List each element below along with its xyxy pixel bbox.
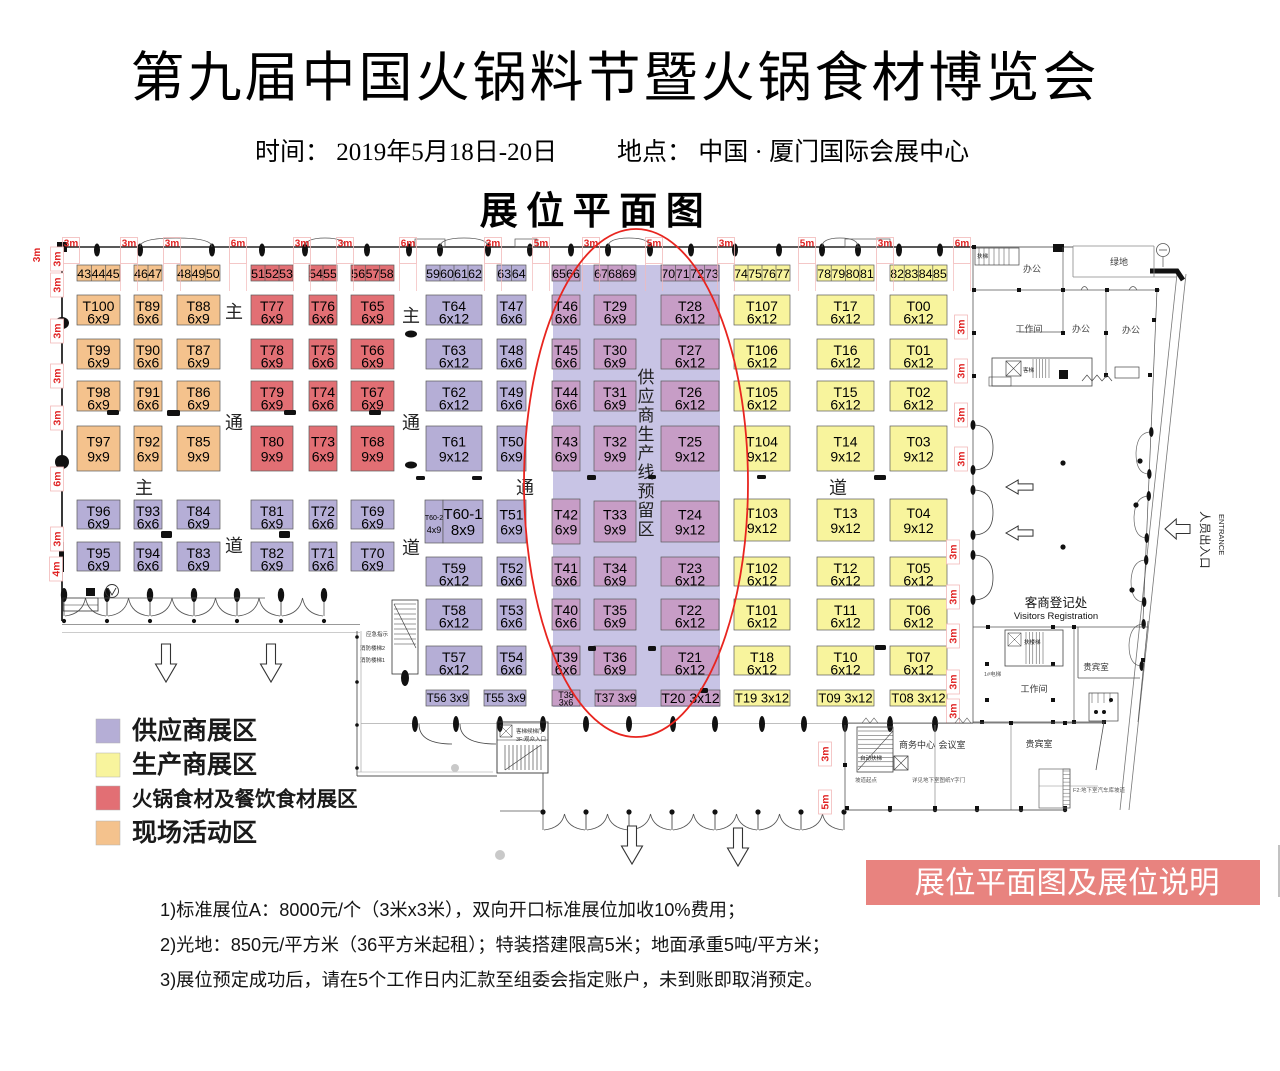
svg-text:58: 58 — [380, 267, 394, 281]
svg-text:81: 81 — [860, 267, 874, 281]
svg-text:3m: 3m — [948, 589, 960, 604]
svg-text:5m: 5m — [647, 238, 662, 249]
svg-text:6x9: 6x9 — [187, 557, 210, 573]
svg-text:6x12: 6x12 — [903, 310, 934, 326]
svg-text:会议室: 会议室 — [938, 739, 965, 750]
svg-text:坡道起点: 坡道起点 — [855, 776, 878, 784]
svg-text:9x12: 9x12 — [830, 449, 861, 465]
svg-text:6x6: 6x6 — [500, 661, 523, 677]
svg-text:6x6: 6x6 — [555, 396, 578, 412]
svg-text:应: 应 — [638, 387, 655, 406]
svg-text:T08 3x12: T08 3x12 — [891, 691, 945, 706]
svg-text:80: 80 — [846, 267, 860, 281]
svg-text:T85: T85 — [186, 433, 210, 449]
svg-text:6x6: 6x6 — [555, 572, 578, 588]
svg-text:T60-2: T60-2 — [425, 515, 443, 522]
svg-text:6x12: 6x12 — [747, 310, 778, 326]
svg-text:6x6: 6x6 — [312, 310, 335, 326]
svg-text:T09 3x12: T09 3x12 — [818, 691, 872, 706]
svg-text:道: 道 — [829, 478, 847, 498]
svg-text:道: 道 — [402, 538, 420, 558]
svg-text:火锅食材及餐饮食材展区: 火锅食材及餐饮食材展区 — [132, 787, 358, 811]
svg-text:商务中心: 商务中心 — [899, 739, 935, 750]
svg-text:F2:地下室汽车库坡道: F2:地下室汽车库坡道 — [1073, 786, 1125, 794]
svg-text:3m: 3m — [52, 323, 64, 338]
svg-text:T97: T97 — [86, 433, 110, 449]
svg-text:9x12: 9x12 — [747, 520, 778, 536]
svg-text:6x9: 6x9 — [361, 396, 384, 412]
svg-text:商: 商 — [638, 406, 655, 425]
svg-text:工作间: 工作间 — [1015, 323, 1042, 334]
svg-text:6x9: 6x9 — [87, 557, 110, 573]
svg-text:47: 47 — [148, 267, 162, 281]
svg-text:线: 线 — [638, 463, 655, 482]
svg-text:6x12: 6x12 — [675, 661, 706, 677]
svg-text:客梯: 客梯 — [1023, 366, 1035, 374]
svg-text:3m: 3m — [165, 238, 180, 249]
svg-text:6x6: 6x6 — [137, 515, 160, 531]
svg-text:6x12: 6x12 — [903, 614, 934, 630]
svg-text:3m: 3m — [122, 238, 137, 249]
svg-text:6x9: 6x9 — [555, 522, 578, 538]
svg-text:60: 60 — [440, 267, 454, 281]
svg-text:T19 3x12: T19 3x12 — [735, 691, 789, 706]
svg-text:6x9: 6x9 — [187, 354, 210, 370]
svg-text:3m: 3m — [878, 238, 893, 249]
svg-text:83: 83 — [905, 267, 919, 281]
svg-text:8x9: 8x9 — [451, 522, 475, 539]
svg-text:6x9: 6x9 — [261, 557, 284, 573]
svg-text:6x6: 6x6 — [137, 354, 160, 370]
svg-text:自动扶梯: 自动扶梯 — [860, 754, 883, 762]
svg-text:45: 45 — [106, 267, 120, 281]
svg-text:6x6: 6x6 — [500, 396, 523, 412]
svg-text:6x12: 6x12 — [675, 572, 706, 588]
svg-text:T92: T92 — [136, 433, 160, 449]
svg-text:71: 71 — [676, 267, 690, 281]
svg-text:T55 3x9: T55 3x9 — [484, 693, 526, 705]
svg-text:6x6: 6x6 — [555, 310, 578, 326]
svg-text:T56 3x9: T56 3x9 — [427, 693, 469, 705]
svg-text:3m: 3m — [584, 238, 599, 249]
svg-text:6x9: 6x9 — [604, 354, 627, 370]
svg-text:75: 75 — [748, 267, 762, 281]
svg-text:48: 48 — [177, 267, 191, 281]
svg-text:时间： 2019年5月18日-20日: 时间： 2019年5月18日-20日 — [255, 138, 557, 166]
svg-text:T13: T13 — [833, 505, 857, 521]
svg-text:客梯候梯厅: 客梯候梯厅 — [516, 727, 544, 735]
svg-text:留: 留 — [638, 501, 655, 520]
svg-text:6x12: 6x12 — [439, 614, 470, 630]
svg-text:79: 79 — [832, 267, 846, 281]
svg-text:T25: T25 — [678, 433, 702, 449]
svg-text:3m: 3m — [52, 251, 64, 266]
svg-text:6x6: 6x6 — [312, 515, 335, 531]
svg-text:T50: T50 — [499, 433, 523, 449]
svg-text:6x12: 6x12 — [675, 614, 706, 630]
svg-text:5m: 5m — [534, 238, 549, 249]
svg-text:3)展位预定成功后，请在5个工作日内汇款至组委会指定账户，未: 3)展位预定成功后，请在5个工作日内汇款至组委会指定账户，未到账即取消预定。 — [160, 970, 823, 990]
svg-text:T43: T43 — [554, 433, 578, 449]
svg-text:3m: 3m — [52, 531, 64, 546]
svg-text:9x9: 9x9 — [187, 449, 210, 465]
svg-text:53: 53 — [279, 267, 293, 281]
svg-text:6x9: 6x9 — [312, 449, 335, 465]
svg-text:T04: T04 — [906, 505, 930, 521]
svg-text:74: 74 — [734, 267, 748, 281]
svg-text:6x9: 6x9 — [604, 310, 627, 326]
svg-text:6x12: 6x12 — [675, 354, 706, 370]
svg-text:区: 区 — [638, 520, 655, 539]
svg-text:6x6: 6x6 — [500, 614, 523, 630]
svg-text:T37 3x9: T37 3x9 — [595, 693, 637, 705]
svg-text:6x12: 6x12 — [903, 396, 934, 412]
svg-text:6x9: 6x9 — [187, 515, 210, 531]
svg-text:产: 产 — [638, 444, 655, 463]
svg-text:3F:观众入口: 3F:观众入口 — [516, 736, 546, 743]
svg-text:6x9: 6x9 — [604, 572, 627, 588]
svg-text:6x12: 6x12 — [747, 661, 778, 677]
svg-text:6x9: 6x9 — [261, 515, 284, 531]
svg-text:办公: 办公 — [1023, 263, 1041, 274]
svg-text:扶梯: 扶梯 — [977, 252, 989, 260]
svg-text:人员出入口: 人员出入口 — [1198, 511, 1212, 569]
svg-text:6x6: 6x6 — [312, 557, 335, 573]
svg-text:T42: T42 — [554, 506, 578, 522]
svg-text:68: 68 — [608, 267, 622, 281]
svg-text:6x6: 6x6 — [500, 354, 523, 370]
svg-text:6x12: 6x12 — [439, 661, 470, 677]
svg-text:预: 预 — [638, 482, 655, 501]
svg-text:3x6: 3x6 — [559, 698, 574, 708]
svg-text:3m: 3m — [820, 746, 832, 761]
svg-text:64: 64 — [512, 267, 526, 281]
svg-text:第九届中国火锅料节暨火锅食材博览会: 第九届中国火锅料节暨火锅食材博览会 — [131, 48, 1100, 108]
svg-text:9x9: 9x9 — [604, 522, 627, 538]
svg-text:6x9: 6x9 — [361, 354, 384, 370]
svg-text:T14: T14 — [833, 433, 857, 449]
svg-text:T68: T68 — [360, 433, 384, 449]
svg-text:9x9: 9x9 — [604, 449, 627, 465]
svg-text:6x12: 6x12 — [439, 572, 470, 588]
svg-text:通: 通 — [402, 413, 420, 433]
svg-text:6m: 6m — [401, 238, 416, 249]
svg-text:1#电梯: 1#电梯 — [984, 670, 1002, 678]
svg-text:生: 生 — [638, 425, 655, 444]
svg-text:6x9: 6x9 — [187, 396, 210, 412]
svg-text:6m: 6m — [52, 471, 64, 486]
svg-text:6x12: 6x12 — [830, 354, 861, 370]
svg-text:6x12: 6x12 — [747, 572, 778, 588]
svg-text:6x6: 6x6 — [312, 354, 335, 370]
svg-text:道: 道 — [225, 536, 243, 556]
svg-text:4m: 4m — [51, 561, 63, 576]
svg-text:59: 59 — [426, 267, 440, 281]
svg-text:Visitors Registration: Visitors Registration — [1014, 611, 1098, 622]
svg-text:6x12: 6x12 — [439, 310, 470, 326]
svg-text:9x12: 9x12 — [903, 520, 934, 536]
svg-text:76: 76 — [762, 267, 776, 281]
svg-text:85: 85 — [933, 267, 947, 281]
svg-text:9x12: 9x12 — [747, 449, 778, 465]
svg-text:3m: 3m — [956, 363, 968, 378]
svg-text:T32: T32 — [603, 433, 627, 449]
svg-text:6x9: 6x9 — [87, 354, 110, 370]
svg-text:6x12: 6x12 — [675, 310, 706, 326]
svg-text:3m: 3m — [32, 248, 43, 263]
svg-text:6m: 6m — [955, 238, 970, 249]
svg-text:6x9: 6x9 — [361, 515, 384, 531]
svg-text:供: 供 — [638, 368, 655, 387]
svg-text:49: 49 — [192, 267, 206, 281]
svg-text:6x12: 6x12 — [830, 396, 861, 412]
svg-text:办公: 办公 — [1122, 324, 1140, 335]
svg-text:82: 82 — [890, 267, 904, 281]
svg-text:消防楼梯1: 消防楼梯1 — [360, 656, 385, 664]
svg-text:4x9: 4x9 — [427, 525, 442, 535]
svg-text:T03: T03 — [906, 433, 930, 449]
svg-text:贵宾室: 贵宾室 — [1083, 662, 1109, 672]
svg-text:T33: T33 — [603, 506, 627, 522]
svg-text:5m: 5m — [820, 794, 832, 809]
svg-text:6x12: 6x12 — [903, 572, 934, 588]
svg-text:3m: 3m — [948, 628, 960, 643]
svg-text:2)光地：850元/平方米（36平方米起租）；特装搭建限高5: 2)光地：850元/平方米（36平方米起租）；特装搭建限高5米；地面承重5吨/平… — [160, 935, 830, 955]
svg-text:6x9: 6x9 — [87, 515, 110, 531]
svg-text:主: 主 — [402, 306, 420, 326]
svg-text:应急指示: 应急指示 — [366, 630, 389, 638]
svg-text:6x9: 6x9 — [261, 354, 284, 370]
svg-text:6x6: 6x6 — [137, 396, 160, 412]
svg-text:详见地下室图纸Y字门: 详见地下室图纸Y字门 — [912, 776, 965, 784]
svg-text:工作间: 工作间 — [1020, 683, 1047, 694]
svg-text:6x9: 6x9 — [604, 661, 627, 677]
svg-text:44: 44 — [92, 267, 106, 281]
svg-text:55: 55 — [323, 267, 337, 281]
svg-text:6x9: 6x9 — [500, 449, 523, 465]
svg-text:9x12: 9x12 — [903, 449, 934, 465]
svg-text:9x12: 9x12 — [675, 449, 706, 465]
svg-text:1)标准展位A：8000元/个（3米x3米），双向开口标准展: 1)标准展位A：8000元/个（3米x3米），双向开口标准展位加收10%费用； — [160, 900, 745, 920]
svg-text:消防楼梯2: 消防楼梯2 — [360, 644, 385, 652]
svg-text:77: 77 — [776, 267, 790, 281]
svg-text:办公: 办公 — [1072, 323, 1090, 334]
svg-text:6x9: 6x9 — [137, 449, 160, 465]
svg-text:6x9: 6x9 — [261, 310, 284, 326]
svg-text:6x12: 6x12 — [903, 354, 934, 370]
svg-text:通: 通 — [225, 413, 243, 433]
svg-text:6x9: 6x9 — [500, 522, 523, 538]
svg-text:6x12: 6x12 — [747, 354, 778, 370]
svg-text:6m: 6m — [231, 238, 246, 249]
svg-text:地点： 中国 · 厦门国际会展中心: 地点： 中国 · 厦门国际会展中心 — [617, 138, 969, 166]
svg-text:3m: 3m — [948, 703, 960, 718]
svg-text:6x9: 6x9 — [604, 614, 627, 630]
svg-text:ENTRANCE: ENTRANCE — [1217, 514, 1226, 555]
svg-text:6x12: 6x12 — [747, 614, 778, 630]
svg-text:绿地: 绿地 — [1110, 256, 1128, 267]
svg-text:46: 46 — [134, 267, 148, 281]
svg-text:6x12: 6x12 — [830, 572, 861, 588]
svg-text:6x6: 6x6 — [137, 557, 160, 573]
svg-text:6x12: 6x12 — [439, 396, 470, 412]
svg-text:3m: 3m — [719, 238, 734, 249]
svg-text:T104: T104 — [746, 433, 778, 449]
svg-text:展位平面图及展位说明: 展位平面图及展位说明 — [915, 866, 1220, 900]
svg-text:6x6: 6x6 — [312, 396, 335, 412]
svg-text:3m: 3m — [52, 368, 64, 383]
svg-text:6x9: 6x9 — [261, 396, 284, 412]
svg-text:3m: 3m — [948, 674, 960, 689]
svg-text:57: 57 — [366, 267, 380, 281]
svg-text:贵宾室: 贵宾室 — [1025, 738, 1052, 749]
svg-text:51: 51 — [251, 267, 265, 281]
svg-text:6x12: 6x12 — [439, 354, 470, 370]
svg-text:6x6: 6x6 — [500, 572, 523, 588]
svg-text:63: 63 — [497, 267, 511, 281]
svg-text:70: 70 — [661, 267, 675, 281]
svg-text:T51: T51 — [499, 506, 523, 522]
svg-text:3m: 3m — [295, 238, 310, 249]
svg-text:3m: 3m — [64, 238, 79, 249]
svg-text:61: 61 — [454, 267, 468, 281]
svg-text:3m: 3m — [486, 238, 501, 249]
svg-text:6x9: 6x9 — [87, 396, 110, 412]
svg-text:84: 84 — [919, 267, 933, 281]
svg-text:3m: 3m — [52, 277, 64, 292]
svg-text:6x6: 6x6 — [500, 310, 523, 326]
svg-text:73: 73 — [705, 267, 719, 281]
svg-text:T73: T73 — [311, 433, 335, 449]
svg-text:9x9: 9x9 — [261, 449, 284, 465]
svg-text:3m: 3m — [956, 407, 968, 422]
svg-text:6x9: 6x9 — [187, 310, 210, 326]
svg-text:6x9: 6x9 — [87, 310, 110, 326]
svg-text:9x9: 9x9 — [361, 449, 384, 465]
svg-text:69: 69 — [622, 267, 636, 281]
svg-text:3m: 3m — [948, 544, 960, 559]
svg-text:T80: T80 — [260, 433, 284, 449]
svg-text:6x12: 6x12 — [830, 310, 861, 326]
svg-text:6x12: 6x12 — [830, 614, 861, 630]
svg-text:T60-1: T60-1 — [443, 506, 482, 523]
svg-text:3m: 3m — [52, 410, 64, 425]
svg-text:3m: 3m — [956, 451, 968, 466]
svg-text:52: 52 — [265, 267, 279, 281]
svg-text:6x12: 6x12 — [747, 396, 778, 412]
svg-text:6x6: 6x6 — [137, 310, 160, 326]
svg-text:T24: T24 — [678, 506, 702, 522]
svg-text:现场活动区: 现场活动区 — [132, 819, 257, 847]
svg-text:6x9: 6x9 — [604, 396, 627, 412]
svg-text:62: 62 — [468, 267, 482, 281]
svg-text:生产商展区: 生产商展区 — [132, 750, 257, 779]
svg-text:6x12: 6x12 — [830, 661, 861, 677]
svg-text:43: 43 — [77, 267, 91, 281]
svg-text:6x6: 6x6 — [555, 614, 578, 630]
svg-text:3m: 3m — [338, 238, 353, 249]
svg-text:50: 50 — [206, 267, 220, 281]
svg-text:6x6: 6x6 — [555, 354, 578, 370]
svg-text:9x12: 9x12 — [439, 449, 470, 465]
svg-text:3m: 3m — [956, 319, 968, 334]
svg-text:9x12: 9x12 — [830, 520, 861, 536]
svg-text:6x9: 6x9 — [361, 557, 384, 573]
svg-text:6x12: 6x12 — [675, 396, 706, 412]
svg-text:T103: T103 — [746, 505, 778, 521]
svg-text:T61: T61 — [442, 433, 466, 449]
svg-text:主: 主 — [225, 302, 243, 322]
svg-text:客商登记处: 客商登记处 — [1025, 595, 1088, 610]
svg-text:供应商展区: 供应商展区 — [131, 716, 257, 745]
svg-text:9x12: 9x12 — [675, 522, 706, 538]
svg-text:65: 65 — [552, 267, 566, 281]
svg-text:扶楼梯: 扶楼梯 — [1024, 638, 1041, 646]
svg-text:主: 主 — [135, 478, 153, 498]
svg-text:6x9: 6x9 — [555, 449, 578, 465]
svg-text:54: 54 — [309, 267, 323, 281]
svg-text:6x9: 6x9 — [361, 310, 384, 326]
svg-text:6x12: 6x12 — [903, 661, 934, 677]
svg-text:展位平面图: 展位平面图 — [480, 191, 713, 233]
svg-text:9x9: 9x9 — [87, 449, 110, 465]
svg-text:5m: 5m — [800, 238, 815, 249]
svg-text:67: 67 — [594, 267, 608, 281]
svg-text:78: 78 — [817, 267, 831, 281]
